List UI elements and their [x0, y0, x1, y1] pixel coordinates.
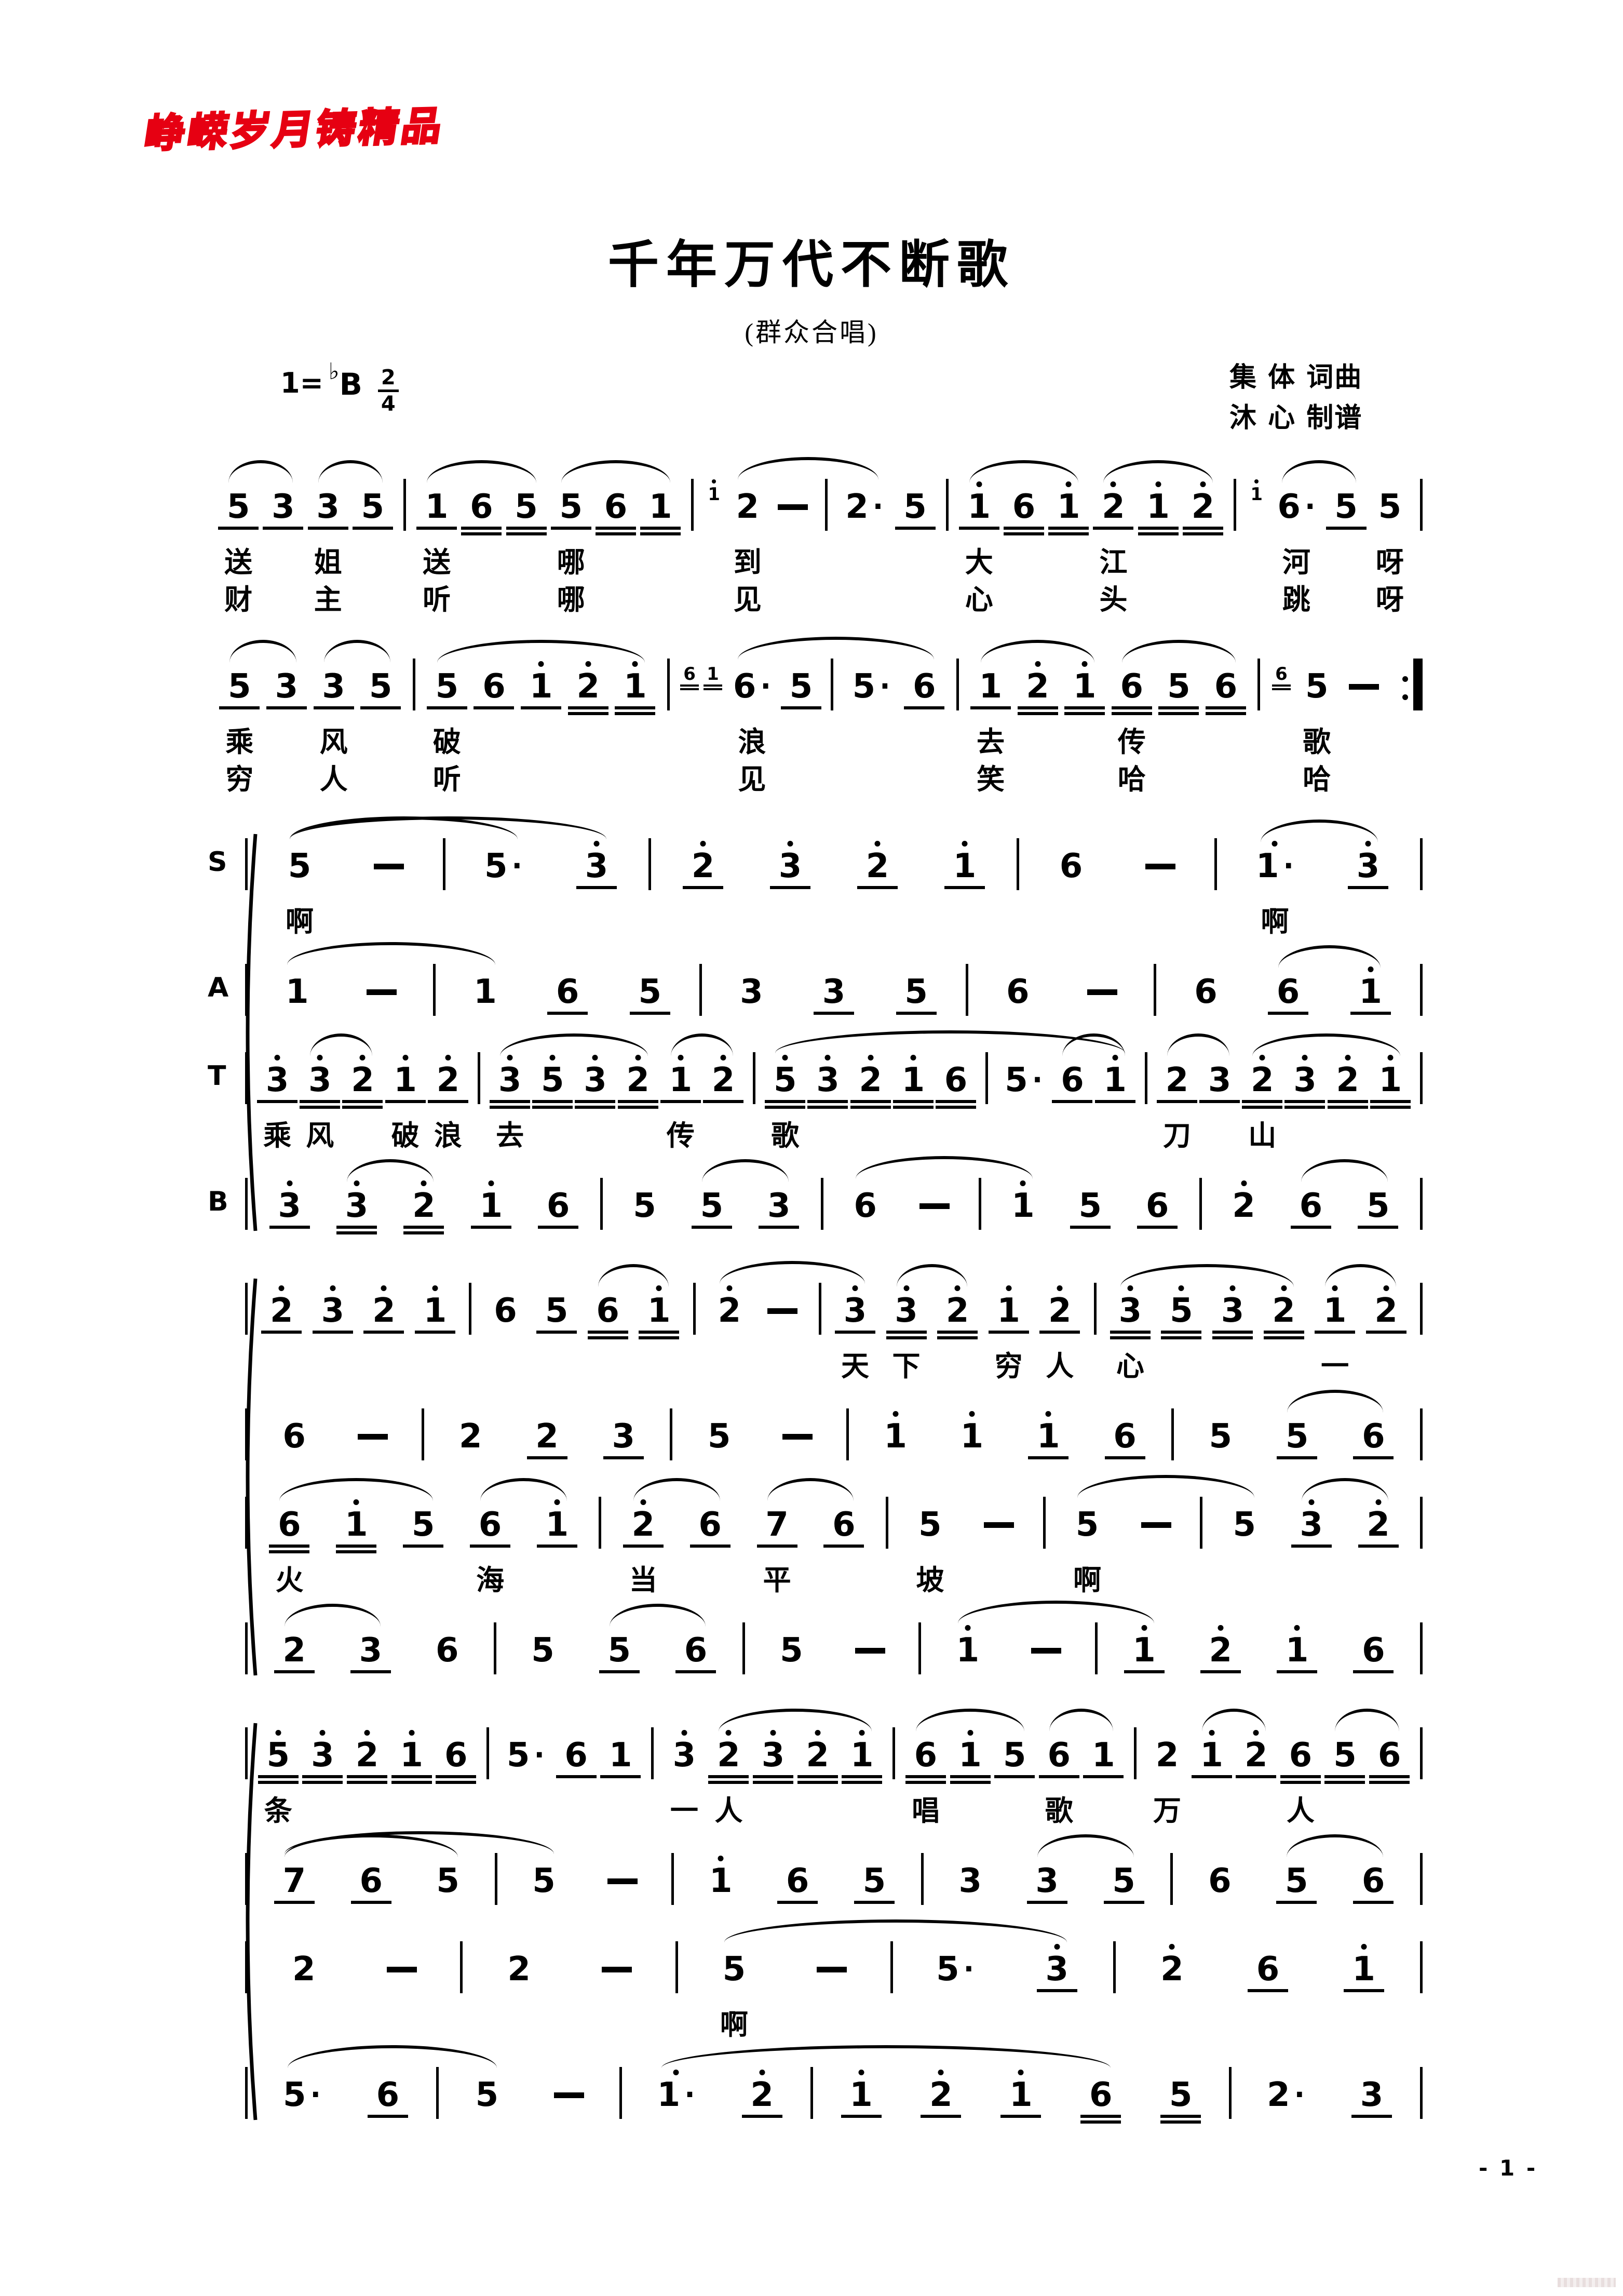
beam-lines	[630, 1012, 670, 1022]
grace-note: 6	[682, 659, 697, 691]
note-token	[602, 1940, 632, 1999]
barline	[1420, 1283, 1423, 1335]
note-glyph: 6·	[1277, 490, 1315, 523]
note-glyph: 5	[1079, 1189, 1102, 1223]
note-token: 6	[1207, 1852, 1233, 1911]
beam-line	[336, 1231, 377, 1234]
beam-lines	[547, 2115, 591, 2125]
slur-arc	[1301, 1159, 1388, 1182]
beam-lines	[1277, 1670, 1317, 1681]
beam-lines	[1351, 2115, 1392, 2125]
beam-lines	[537, 1545, 577, 1555]
note-glyph	[387, 1953, 417, 1986]
note-glyph: 5	[227, 490, 250, 523]
beam-line	[336, 1550, 376, 1553]
beam-line	[596, 527, 636, 530]
beam-lines	[450, 1456, 491, 1467]
lyric-char: 啊	[286, 898, 314, 939]
note-glyph: 6	[1061, 1064, 1084, 1097]
beam-lines	[1353, 1670, 1394, 1681]
note-glyph: 2	[372, 1294, 396, 1327]
measure: 1·2	[622, 2066, 810, 2125]
beam-lines	[551, 527, 591, 537]
beam-lines	[600, 1901, 645, 1911]
note-token: 7	[281, 1852, 307, 1911]
measure: 1216	[1098, 1621, 1420, 1681]
beam-lines	[615, 706, 655, 717]
note-glyph: 3	[359, 1634, 383, 1667]
slur-arc	[1278, 945, 1381, 968]
note-token: 5	[544, 1282, 570, 1341]
note-glyph: 5·	[283, 2078, 321, 2112]
slur-arc	[969, 460, 1078, 483]
note-token: 6	[911, 657, 937, 717]
note-glyph: 3	[311, 1739, 334, 1772]
barline	[1420, 1727, 1423, 1779]
note-token: 6	[1275, 963, 1301, 1022]
note-glyph: 1	[624, 670, 647, 703]
beam-lines	[403, 1545, 443, 1555]
note-token: 1	[708, 1852, 734, 1911]
beam-line	[1037, 1989, 1077, 1992]
slur-arc	[500, 1033, 648, 1056]
note-glyph: 3	[498, 1064, 522, 1097]
measure: 121656	[959, 657, 1258, 717]
note-token: 6	[853, 1177, 878, 1236]
beam-lines	[703, 1100, 743, 1110]
note-token: 1	[1145, 478, 1171, 537]
beam-lines	[336, 1226, 377, 1236]
beam-line	[568, 706, 608, 709]
note-token	[387, 1940, 417, 1999]
beam-lines	[1249, 886, 1301, 896]
beam-line	[313, 1331, 353, 1334]
note-glyph	[767, 1294, 797, 1327]
note-token: 1	[952, 837, 978, 896]
measure: 661	[1156, 963, 1420, 1022]
note-glyph: 1	[1132, 1634, 1156, 1667]
beam-line	[521, 706, 561, 709]
beam-lines	[416, 527, 457, 537]
note-token: 5	[225, 478, 251, 537]
beam-lines	[274, 1901, 315, 1911]
lyric-char: 人	[1287, 1788, 1315, 1829]
note-glyph	[358, 1420, 388, 1453]
note-token: 5	[637, 963, 663, 1022]
beam-line	[1093, 527, 1133, 530]
note-token: 2	[1154, 1726, 1180, 1785]
augmentation-dot: ·	[1305, 493, 1316, 521]
note-token: 6	[697, 1496, 723, 1555]
note-glyph: 3	[895, 1294, 918, 1327]
note-glyph	[817, 1953, 847, 1986]
beam-lines	[910, 1545, 950, 1555]
beam-line	[261, 1331, 302, 1334]
note-glyph: 5	[361, 490, 385, 523]
beam-lines	[1224, 1545, 1265, 1555]
dash-line	[1031, 1648, 1061, 1654]
beam-line	[1124, 1670, 1165, 1673]
beam-line	[471, 1226, 511, 1229]
note-glyph: 1	[956, 1634, 980, 1667]
octave-dot	[938, 2070, 944, 2075]
note-token: 3	[821, 963, 847, 1022]
note-glyph: 3	[1293, 1064, 1317, 1097]
beam-lines	[753, 1775, 793, 1785]
beam-lines	[257, 1100, 297, 1110]
beam-line	[1284, 1106, 1325, 1109]
note-token: 1	[957, 1726, 983, 1785]
beam-lines	[1083, 1775, 1124, 1785]
note-glyph: 5	[1169, 2078, 1193, 2112]
octave-dot	[488, 1180, 494, 1186]
beam-line	[568, 712, 608, 715]
beam-line	[660, 1100, 701, 1103]
lyric-char: 哈	[1303, 756, 1331, 797]
barline	[1416, 659, 1423, 710]
note-glyph: 6	[1006, 975, 1030, 1009]
note-glyph: 6	[444, 1739, 468, 1772]
beam-lines	[1284, 1100, 1325, 1110]
beam-lines	[524, 1901, 564, 1911]
note-token: 6	[1011, 478, 1037, 537]
slur-arc	[437, 640, 645, 663]
note-token: 3	[738, 963, 764, 1022]
beam-line	[1264, 1336, 1304, 1339]
slur-arc	[318, 460, 383, 483]
beam-lines	[1003, 1226, 1043, 1236]
note-token: 3	[277, 1177, 303, 1236]
beam-line	[921, 2115, 961, 2118]
note-glyph: 1	[849, 2078, 873, 2112]
note-glyph: 2	[626, 1064, 650, 1097]
beam-line	[1027, 1901, 1067, 1904]
measure: 353212	[480, 1051, 753, 1110]
beam-line	[599, 1670, 640, 1673]
note-token: 6	[493, 1282, 519, 1341]
note-glyph: 5	[904, 975, 928, 1009]
beam-lines	[277, 1012, 317, 1022]
score-line: A11653356661	[208, 940, 1423, 1022]
measure: 5	[672, 1407, 846, 1467]
beam-lines	[1137, 1226, 1178, 1236]
note-glyph: 1	[669, 1064, 693, 1097]
score-system: 533556121616·55·612165665乘风破浪去传歌穷人听见笑哈哈	[208, 635, 1423, 791]
beam-lines	[704, 684, 722, 691]
beam-line	[385, 1100, 426, 1103]
beam-line	[1206, 712, 1246, 715]
measure: 5	[1046, 1496, 1200, 1555]
octave-dot	[409, 1730, 414, 1736]
dash-line	[1349, 684, 1379, 690]
note-glyph: 6	[913, 670, 936, 703]
beam-line	[639, 1336, 679, 1339]
note-glyph: 1	[1009, 2078, 1033, 2112]
note-glyph: 1	[1092, 1739, 1115, 1772]
note-token	[817, 1940, 847, 1999]
note-glyph: 1	[530, 670, 553, 703]
note-glyph: 1	[480, 1189, 503, 1223]
note-token: 3	[766, 1177, 792, 1236]
measure: 556	[1174, 1407, 1420, 1467]
dash-line	[367, 989, 397, 995]
octave-dot	[892, 1411, 898, 1417]
measure: 165	[436, 963, 699, 1022]
note-token: 5	[1002, 1726, 1027, 1785]
note-token: 6	[468, 478, 494, 537]
beam-line	[1137, 1226, 1178, 1229]
lyric-char: 心	[1116, 1343, 1144, 1384]
note-glyph: 5	[700, 1189, 724, 1223]
slur-arc	[561, 460, 670, 483]
note-glyph: 6	[1208, 1864, 1232, 1898]
note-token: 2	[435, 1051, 461, 1110]
note-glyph: 3	[1035, 1864, 1059, 1898]
beam-line	[588, 1336, 628, 1339]
octave-dot	[700, 841, 706, 847]
beam-lines	[470, 1545, 510, 1555]
note-token: 3	[582, 1051, 608, 1110]
note-token: 5	[1168, 2066, 1194, 2125]
beam-lines	[727, 527, 768, 537]
dash-line	[602, 1967, 632, 1972]
measure: 1	[921, 1621, 1095, 1681]
octave-dot	[1018, 2070, 1024, 2075]
measure: 353212	[1097, 1282, 1420, 1341]
note-glyph: 5·	[936, 1953, 974, 1986]
note-glyph: 3	[612, 1420, 635, 1453]
beam-lines	[353, 527, 393, 537]
note-glyph: 2	[866, 850, 889, 883]
beam-line	[1183, 527, 1223, 530]
beam-lines	[269, 1226, 310, 1236]
measure-row: 7655165335656	[245, 1852, 1423, 1911]
beam-lines	[921, 2115, 961, 2125]
beam-line	[704, 688, 722, 690]
grace-note: 1	[706, 659, 720, 691]
beam-line	[1138, 532, 1179, 535]
beam-lines	[1183, 527, 1223, 537]
note-glyph: 6	[494, 1294, 517, 1327]
beam-line	[703, 1100, 743, 1103]
beam-line	[623, 1545, 664, 1548]
lyric-row: 条一人唱歌万人	[208, 1785, 1423, 1823]
music-line: 5335165561122·516121216·55	[208, 478, 1423, 537]
beam-lines	[600, 1775, 641, 1785]
beam-lines	[1370, 1100, 1411, 1110]
beam-lines	[977, 1545, 1021, 1555]
note-token	[1145, 837, 1175, 896]
beam-line	[781, 706, 821, 709]
measure-row: 11653356661	[245, 963, 1423, 1022]
beam-line	[936, 1106, 976, 1109]
beam-lines	[650, 2115, 702, 2125]
flat-icon: ♭	[329, 358, 340, 385]
beam-lines	[485, 1331, 526, 1341]
note-glyph: 2	[632, 1508, 655, 1541]
beam-lines	[771, 1670, 811, 1681]
beam-lines	[536, 1331, 577, 1341]
note-glyph: 5	[608, 1634, 631, 1667]
note-token: 1	[422, 1282, 448, 1341]
music-line: 532165·613232161561212656	[208, 1726, 1423, 1785]
note-token: 3	[842, 1282, 868, 1341]
beam-line	[1105, 1456, 1145, 1459]
note-glyph: 3	[585, 850, 608, 883]
note-token: 2	[735, 478, 761, 537]
dash-line	[1145, 864, 1175, 869]
note-glyph	[374, 850, 404, 883]
slur-arc	[1335, 1709, 1399, 1731]
beam-line	[1052, 1100, 1092, 1103]
beam-lines	[875, 1456, 916, 1467]
dash-line	[778, 504, 808, 510]
beam-line	[1110, 1331, 1151, 1334]
slur-arc	[767, 1478, 854, 1501]
note-glyph: 1	[850, 1739, 874, 1772]
note-token: 1	[1056, 478, 1081, 537]
beam-line	[1112, 712, 1152, 715]
note-glyph: 6	[596, 1294, 619, 1327]
beam-lines	[765, 1100, 805, 1110]
measure: 2	[463, 1940, 675, 1999]
dash-line	[782, 1434, 813, 1440]
note-token	[1031, 1621, 1061, 1681]
note-glyph: 2	[1166, 1064, 1189, 1097]
beam-lines	[314, 706, 354, 717]
beam-lines	[261, 1331, 302, 1341]
beam-line	[1192, 1775, 1232, 1778]
note-token: 5	[772, 1051, 798, 1110]
note-glyph	[554, 2078, 584, 2112]
music-line: 23216561233212353212	[208, 1282, 1423, 1341]
beam-line	[905, 1775, 946, 1778]
note-token: 5	[788, 657, 814, 717]
beam-line	[427, 706, 467, 709]
beam-lines	[1358, 1545, 1399, 1555]
beam-lines	[1051, 886, 1091, 896]
beam-line	[1200, 1670, 1241, 1673]
beam-lines	[994, 1775, 1035, 1785]
note-glyph: 3	[816, 1064, 840, 1097]
score-body: 5335165561122·516121216·55送姐送哪到大江河呀财主听哪见…	[208, 455, 1423, 2148]
measure: 656	[1173, 1852, 1420, 1911]
note-glyph: 2	[1232, 1189, 1255, 1223]
slur-arc	[324, 640, 391, 663]
beam-line	[1280, 1781, 1321, 1784]
beam-line	[218, 527, 259, 530]
beam-line	[527, 1456, 567, 1459]
score-line: 2255·3261啊	[208, 1917, 1423, 2037]
note-glyph: 3	[322, 670, 345, 703]
note-token: 5	[1111, 1852, 1137, 1911]
note-token: 6	[443, 1726, 469, 1785]
note-glyph: 3	[1046, 1953, 1069, 1986]
note-token: 7	[764, 1496, 790, 1555]
note-glyph: 5·	[853, 670, 890, 703]
note-glyph: 6	[1362, 1634, 1385, 1667]
beam-line	[416, 527, 457, 530]
slur-arc	[1037, 1834, 1134, 1857]
note-token: 3	[309, 1726, 335, 1785]
note-glyph: 2	[712, 1064, 735, 1097]
beam-line	[461, 527, 502, 530]
slur-arc	[856, 1156, 1033, 1179]
measure: 5	[745, 1621, 919, 1681]
note-token: 2	[371, 1282, 397, 1341]
beam-line	[350, 1670, 391, 1673]
note-token: 5	[1232, 1496, 1257, 1555]
beam-lines	[997, 1100, 1050, 1110]
note-glyph	[782, 1420, 813, 1453]
octave-dot	[868, 1055, 873, 1060]
note-glyph: 3	[1208, 1064, 1232, 1097]
beam-line	[470, 1545, 510, 1548]
note-token: 1	[1377, 1051, 1403, 1110]
score-line: 23216561233212353212天下穷人心一	[208, 1259, 1423, 1378]
beam-lines	[700, 1901, 741, 1911]
beam-lines	[1315, 1331, 1355, 1341]
note-token: 6	[1360, 1621, 1386, 1681]
note-token: 6	[1360, 1407, 1386, 1467]
slur-arc	[310, 1033, 372, 1056]
note-token: 2	[281, 1621, 307, 1681]
note-glyph: 6	[1256, 1953, 1280, 1986]
note-glyph: 5	[541, 1064, 564, 1097]
note-token: 5	[721, 1940, 747, 1999]
beam-line	[536, 1331, 577, 1334]
beam-lines	[1124, 1670, 1165, 1681]
note-token: 6	[1213, 657, 1239, 717]
note-token: 5	[226, 657, 252, 717]
beam-lines	[775, 1456, 820, 1467]
slur-arc	[702, 1159, 789, 1182]
measure-row: 5335165561122·516121216·55	[208, 478, 1423, 537]
score-line: 5335165561122·516121216·55送姐送哪到大江河呀财主听哪见…	[208, 455, 1423, 612]
note-token: 3	[894, 1282, 919, 1341]
note-token: 1	[622, 657, 648, 717]
note-glyph: 3	[767, 1189, 791, 1223]
note-token: 6	[785, 1852, 810, 1911]
note-token: 6	[1193, 963, 1219, 1022]
beam-lines	[699, 1456, 739, 1467]
note-glyph: 7	[765, 1508, 789, 1541]
slur-arc	[1103, 460, 1212, 483]
note-glyph: 5	[633, 1189, 656, 1223]
note-glyph: 5	[918, 1508, 942, 1541]
octave-dot	[1046, 1411, 1051, 1417]
beam-line	[347, 1781, 387, 1784]
note-glyph: 1·	[657, 2078, 695, 2112]
note-glyph: 3	[272, 490, 295, 523]
beam-line	[1324, 1781, 1365, 1784]
note-glyph	[1349, 670, 1379, 703]
beam-lines	[1326, 527, 1367, 537]
lyric-row: 火海当平坡啊	[208, 1555, 1423, 1592]
beam-line	[765, 1106, 805, 1109]
beam-line	[823, 1545, 864, 1548]
beam-line	[368, 2115, 408, 2118]
note-token: 1	[528, 657, 554, 717]
beam-lines	[944, 886, 985, 896]
music-line: T33212353212532165·61232321	[208, 1051, 1423, 1110]
beam-lines	[1018, 706, 1058, 717]
beam-line	[757, 1545, 797, 1548]
octave-dot	[381, 1285, 387, 1291]
beam-line	[269, 1545, 309, 1548]
beam-lines	[1280, 1775, 1321, 1785]
beam-lines	[279, 886, 320, 896]
